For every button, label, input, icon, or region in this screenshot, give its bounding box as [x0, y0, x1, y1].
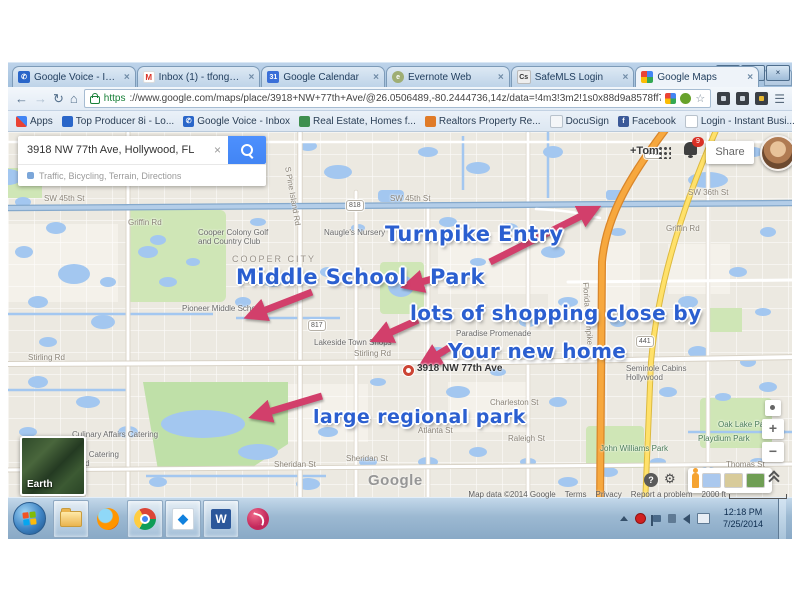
notification-badge: 9 — [692, 137, 704, 147]
rpr-favicon — [425, 116, 436, 127]
map-footer: Map data ©2014 Google Terms Privacy Repo… — [468, 490, 787, 499]
share-button[interactable]: Share — [706, 141, 754, 164]
earth-view-toggle[interactable]: Earth — [20, 436, 86, 496]
zoom-out-button[interactable]: − — [762, 442, 784, 462]
map-mode-options[interactable]: Traffic, Bicycling, Terrain, Directions — [18, 164, 266, 186]
home-button[interactable]: ⌂ — [70, 92, 78, 105]
tab-google-calendar[interactable]: 31 Google Calendar × — [261, 66, 385, 87]
map-zoom-controls: + − — [762, 400, 784, 462]
dropbox-icon: ◆ — [172, 508, 194, 530]
tab-strip: ✆ Google Voice - Inbox × M Inbox (1) - t… — [8, 62, 792, 87]
maps-search-card: 3918 NW 77th Ave, Hollywood, FL × Traffi… — [18, 136, 266, 186]
pegman-icon[interactable] — [692, 473, 699, 488]
google-logo: Google — [368, 472, 423, 489]
annotation-text: Turnpike Entry — [385, 222, 563, 246]
tab-close-icon[interactable]: × — [249, 72, 255, 83]
search-input[interactable]: 3918 NW 77th Ave, Hollywood, FL — [18, 144, 207, 156]
extension-icon[interactable] — [736, 92, 749, 105]
bookmark-star-icon[interactable]: ☆ — [695, 92, 705, 105]
bookmark-login-instant[interactable]: Login - Instant Busi... — [685, 115, 795, 128]
bookmark-label: Apps — [30, 116, 53, 127]
red-app-icon — [247, 508, 269, 530]
zoom-in-button[interactable]: + — [762, 419, 784, 439]
traffic-icon — [27, 172, 34, 179]
docusign-favicon — [550, 115, 563, 128]
taskbar-explorer[interactable] — [53, 500, 89, 538]
location-button[interactable] — [765, 400, 781, 416]
ssl-lock-icon — [90, 96, 100, 104]
taskbar-clock[interactable]: 12:18 PM 7/25/2014 — [717, 507, 769, 530]
extension-icon[interactable] — [717, 92, 730, 105]
close-window-button[interactable]: × — [766, 65, 790, 81]
bookmark-apps[interactable]: Apps — [16, 116, 53, 127]
volume-icon[interactable] — [683, 514, 690, 524]
browser-toolbar: ← → ↻ ⌂ https ://www.google.com/maps/pla… — [8, 87, 792, 111]
chrome-icon — [134, 508, 156, 530]
annotation-text: Middle School — [236, 265, 407, 289]
taskbar-dropbox[interactable]: ◆ — [165, 500, 201, 538]
map-viewport: Nova Middle SchoolSW 45th StSW 45th StGr… — [8, 132, 792, 500]
terms-link[interactable]: Terms — [565, 490, 587, 499]
url-text: ://www.google.com/maps/place/3918+NW+77t… — [129, 93, 661, 104]
bookmark-label: Google Voice - Inbox — [197, 116, 290, 127]
gmail-favicon: M — [143, 71, 155, 83]
google-voice-favicon: ✆ — [18, 71, 30, 83]
extension-icon[interactable] — [755, 92, 768, 105]
collapse-panel-chevron[interactable] — [770, 472, 778, 482]
show-desktop-button[interactable] — [778, 498, 786, 539]
tray-red-icon[interactable] — [635, 513, 646, 524]
screenshot: ✆ Google Voice - Inbox × M Inbox (1) - t… — [0, 0, 800, 599]
tray-device-icon[interactable] — [668, 514, 676, 523]
marker-label: 3918 NW 77th Ave — [417, 363, 502, 374]
windows-logo-icon — [22, 511, 36, 525]
bookmark-label: Real Estate, Homes f... — [313, 116, 416, 127]
word-icon: W — [211, 509, 231, 529]
tab-google-maps[interactable]: Google Maps × — [635, 66, 759, 87]
search-icon — [241, 144, 253, 156]
tab-label: Google Voice - Inbox — [34, 72, 120, 83]
url-scheme: https — [104, 93, 126, 104]
bookmark-docusign[interactable]: DocuSign — [550, 115, 609, 128]
taskbar-word[interactable]: W — [203, 500, 239, 538]
tab-safemls[interactable]: Cs SafeMLS Login × — [511, 66, 635, 87]
bookmark-label: Login - Instant Busi... — [701, 116, 795, 127]
clock-date: 7/25/2014 — [723, 519, 763, 529]
bookmark-label: Top Producer 8i - Lo... — [76, 116, 174, 127]
address-bar[interactable]: https ://www.google.com/maps/place/3918+… — [84, 89, 711, 108]
bookmark-top-producer[interactable]: Top Producer 8i - Lo... — [62, 116, 174, 127]
map-marker[interactable] — [403, 365, 414, 376]
taskbar-chrome[interactable] — [127, 500, 163, 538]
layer-thumbnail-map[interactable] — [702, 473, 721, 488]
bookmark-real-estate[interactable]: Real Estate, Homes f... — [299, 116, 416, 127]
search-button[interactable] — [228, 136, 266, 164]
earth-label: Earth — [27, 479, 53, 490]
bookmark-label: DocuSign — [566, 116, 609, 127]
tab-evernote[interactable]: e Evernote Web × — [386, 66, 510, 87]
start-button[interactable] — [13, 502, 46, 535]
browser-window: ✆ Google Voice - Inbox × M Inbox (1) - t… — [8, 62, 792, 500]
login-favicon — [685, 115, 698, 128]
clock-time: 12:18 PM — [724, 507, 763, 517]
system-tray: 12:18 PM 7/25/2014 — [620, 498, 792, 539]
annotation-text: lots of shopping close by — [410, 301, 702, 325]
layer-thumbnail-earth[interactable] — [724, 473, 743, 488]
maps-favicon — [641, 71, 653, 83]
layer-thumbnail-terrain[interactable] — [746, 473, 765, 488]
reload-button[interactable]: ↻ — [53, 92, 64, 105]
plus-name-link[interactable]: +Tom — [630, 145, 659, 157]
google-voice-favicon: ✆ — [183, 116, 194, 127]
taskbar-firefox[interactable] — [91, 501, 125, 537]
taskbar-red-app[interactable] — [241, 501, 275, 537]
firefox-icon — [97, 508, 119, 530]
annotation-text: Park — [430, 265, 485, 289]
tab-label: SafeMLS Login — [535, 72, 619, 83]
bookmark-google-voice[interactable]: ✆Google Voice - Inbox — [183, 116, 290, 127]
tab-close-icon[interactable]: × — [623, 72, 629, 83]
privacy-link[interactable]: Privacy — [595, 490, 621, 499]
forward-button[interactable]: → — [34, 92, 47, 105]
help-button[interactable]: ? — [644, 473, 658, 487]
gear-icon[interactable]: ⚙ — [664, 471, 676, 487]
top-producer-favicon — [62, 116, 73, 127]
facebook-favicon: f — [618, 116, 629, 127]
chrome-menu-icon[interactable]: ☰ — [774, 92, 785, 106]
bookmark-facebook[interactable]: fFacebook — [618, 116, 676, 127]
bookmark-label: Realtors Property Re... — [439, 116, 541, 127]
back-button[interactable]: ← — [15, 92, 28, 105]
bookmark-label: Facebook — [632, 116, 676, 127]
notifications-bell-icon[interactable]: 9 — [684, 142, 697, 155]
report-problem-link[interactable]: Report a problem — [631, 490, 693, 499]
tab-label: Google Maps — [657, 72, 743, 83]
apps-grid-icon — [16, 116, 27, 127]
maps-page-icon[interactable] — [665, 93, 676, 104]
safemls-favicon: Cs — [517, 70, 531, 84]
windows-taskbar: ◆ W 12:18 PM 7/25/2014 — [8, 497, 792, 539]
folder-icon — [60, 511, 82, 527]
tab-google-voice[interactable]: ✆ Google Voice - Inbox × — [12, 66, 136, 87]
real-estate-favicon — [299, 116, 310, 127]
evernote-clip-icon[interactable] — [680, 93, 691, 104]
map-data-attribution: Map data ©2014 Google — [468, 490, 555, 499]
avatar[interactable] — [760, 135, 792, 171]
tab-close-icon[interactable]: × — [373, 72, 379, 83]
bookmark-realtors-property[interactable]: Realtors Property Re... — [425, 116, 541, 127]
tab-label: Evernote Web — [408, 72, 494, 83]
scale-label: 2000 ft — [702, 490, 726, 499]
tab-close-icon[interactable]: × — [498, 72, 504, 83]
annotation-text: large regional park — [313, 406, 526, 428]
tray-expand-icon[interactable] — [620, 516, 628, 521]
network-icon[interactable] — [697, 513, 710, 524]
clear-search-icon[interactable]: × — [207, 143, 228, 157]
tab-close-icon[interactable]: × — [747, 72, 753, 83]
scale-bar — [729, 494, 787, 499]
annotations-layer: Turnpike EntryMiddle SchoolParklots of s… — [8, 132, 792, 500]
tab-label: Google Calendar — [283, 72, 369, 83]
google-apps-grid-icon[interactable] — [658, 146, 671, 159]
tab-label: Inbox (1) - tfongolfer@g... — [159, 72, 245, 83]
map-options-label: Traffic, Bicycling, Terrain, Directions — [39, 171, 181, 181]
calendar-favicon: 31 — [267, 71, 279, 83]
tab-gmail-inbox[interactable]: M Inbox (1) - tfongolfer@g... × — [137, 66, 261, 87]
tab-close-icon[interactable]: × — [124, 72, 130, 83]
annotation-text: Your new home — [448, 339, 626, 363]
bookmarks-bar: Apps Top Producer 8i - Lo... ✆Google Voi… — [8, 111, 792, 132]
action-center-flag-icon[interactable] — [653, 515, 661, 522]
evernote-favicon: e — [392, 71, 404, 83]
